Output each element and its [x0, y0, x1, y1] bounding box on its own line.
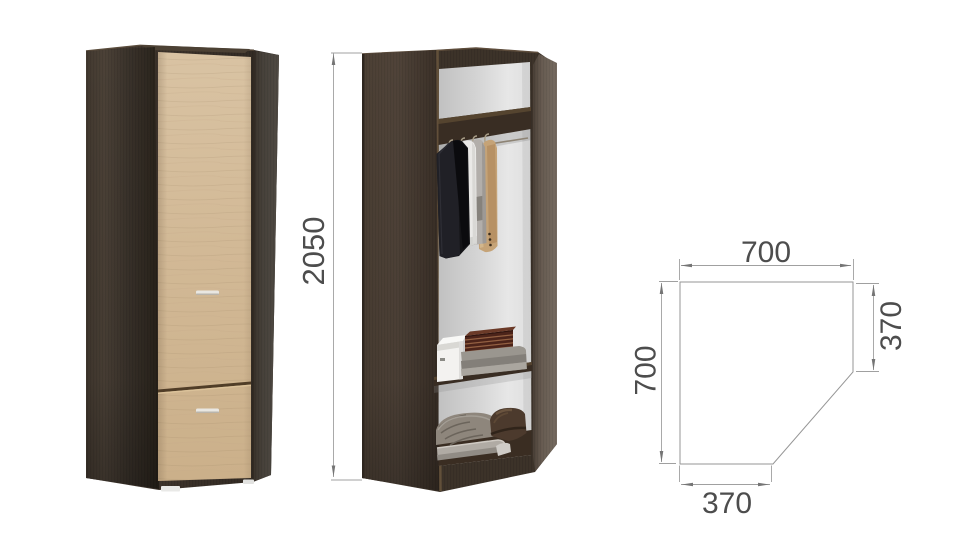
- svg-text:370: 370: [702, 487, 752, 520]
- svg-text:2050: 2050: [296, 217, 331, 286]
- svg-text:700: 700: [630, 345, 663, 395]
- svg-text:370: 370: [875, 301, 908, 351]
- svg-text:700: 700: [741, 236, 791, 269]
